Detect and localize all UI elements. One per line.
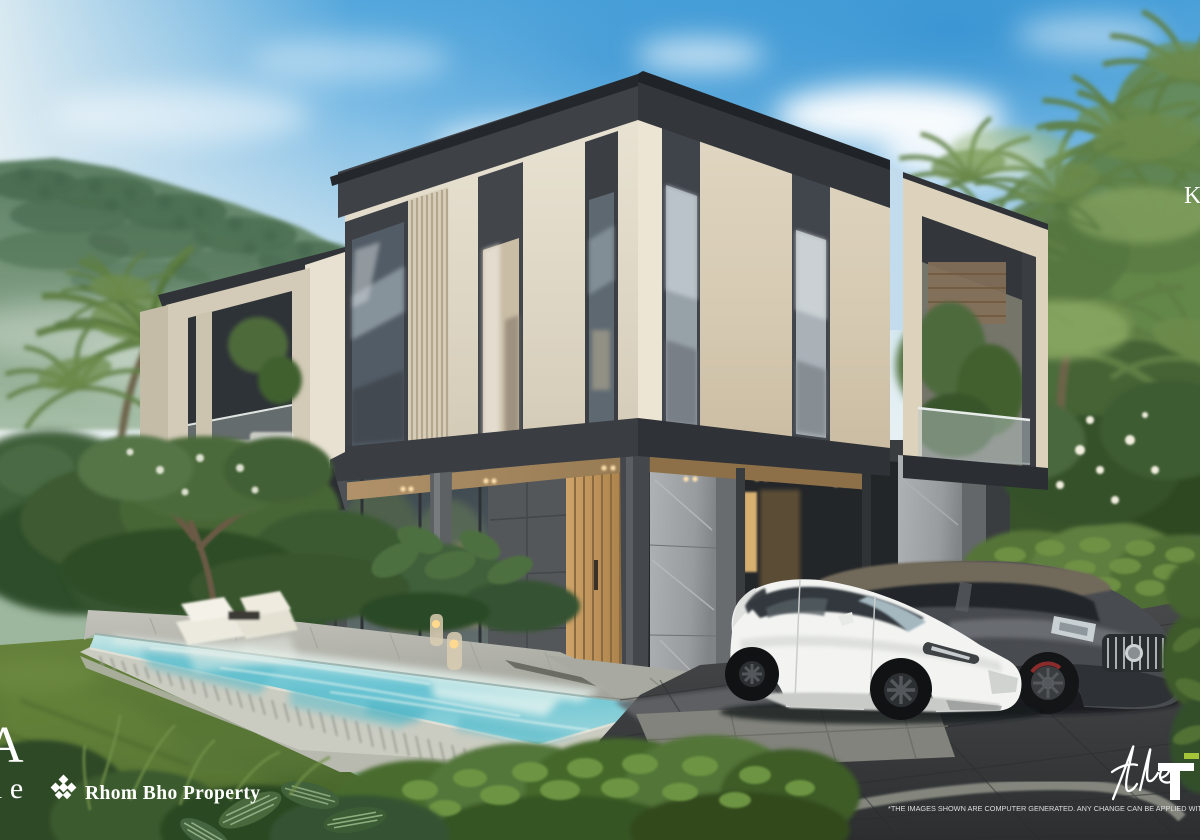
svg-text:A: A [0,717,24,774]
svg-text:*THE IMAGES SHOWN ARE COMPUTER: *THE IMAGES SHOWN ARE COMPUTER GENERATED… [888,804,1200,813]
svg-text:K: K [1184,183,1200,209]
svg-text:Rhom Bho Property: Rhom Bho Property [85,783,260,804]
svg-text:i e: i e [0,772,23,805]
